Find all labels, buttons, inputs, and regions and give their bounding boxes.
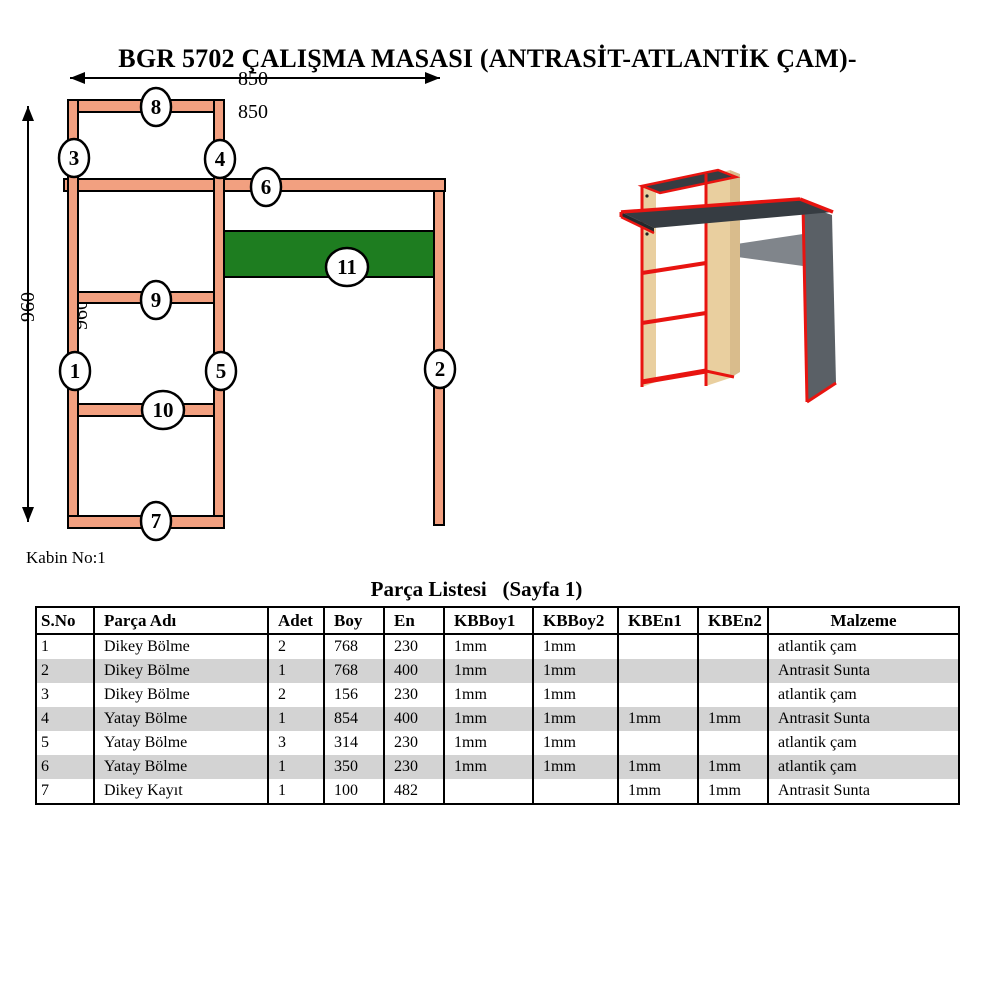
- column-header: Boy: [324, 607, 384, 634]
- column-header: KBBoy2: [533, 607, 618, 634]
- width-dimension-arrow: 850: [70, 68, 440, 90]
- technical-sheet: BGR 5702 ÇALIŞMA MASASI (ANTRASİT-ATLANT…: [0, 0, 1000, 1000]
- table-cell: Yatay Bölme: [94, 707, 268, 731]
- table-cell: Dikey Bölme: [94, 634, 268, 659]
- table-cell: Yatay Bölme: [94, 755, 268, 779]
- table-cell: 230: [384, 634, 444, 659]
- table-cell: [698, 659, 768, 683]
- width-dimension-value: 850: [238, 68, 268, 90]
- column-header: KBEn1: [618, 607, 698, 634]
- table-cell: 1mm: [444, 659, 533, 683]
- marker-1: 1: [70, 359, 81, 383]
- table-cell: atlantik çam: [768, 755, 959, 779]
- parts-table-body: 1Dikey Bölme27682301mm1mmatlantik çam2Di…: [36, 634, 959, 804]
- height-dimension-value: 960: [17, 292, 39, 322]
- table-cell: [698, 634, 768, 659]
- height-dimension-arrow: 960: [17, 106, 39, 522]
- table-row: 7Dikey Kayıt11004821mm1mmAntrasit Sunta: [36, 779, 959, 804]
- table-cell: 2: [36, 659, 94, 683]
- table-cell: 1mm: [698, 707, 768, 731]
- table-cell: [698, 683, 768, 707]
- parts-table: S.NoParça AdıAdetBoyEnKBBoy1KBBoy2KBEn1K…: [35, 606, 960, 805]
- table-cell: [444, 779, 533, 804]
- table-cell: 5: [36, 731, 94, 755]
- marker-2: 2: [435, 357, 446, 381]
- render-screw-dot: [645, 194, 648, 197]
- marker-5: 5: [216, 359, 227, 383]
- table-cell: 2: [268, 683, 324, 707]
- table-cell: 400: [384, 659, 444, 683]
- marker-9: 9: [151, 288, 162, 312]
- table-cell: [698, 731, 768, 755]
- front-view-drawing: 850 960 960 850 8 3 4 6 11 9 1: [0, 0, 520, 580]
- render-tower-right-side: [730, 170, 740, 378]
- table-cell: 1mm: [444, 634, 533, 659]
- table-cell: 1mm: [698, 755, 768, 779]
- table-cell: [618, 731, 698, 755]
- table-row: 1Dikey Bölme27682301mm1mmatlantik çam: [36, 634, 959, 659]
- column-header: Malzeme: [768, 607, 959, 634]
- table-cell: atlantik çam: [768, 683, 959, 707]
- table-cell: 1mm: [618, 707, 698, 731]
- marker-4: 4: [215, 147, 226, 171]
- render-screw-dot: [645, 232, 648, 235]
- table-row: 6Yatay Bölme13502301mm1mm1mm1mmatlantik …: [36, 755, 959, 779]
- table-cell: 230: [384, 731, 444, 755]
- table-cell: 854: [324, 707, 384, 731]
- table-cell: 1: [268, 707, 324, 731]
- render-tower-right-panel: [706, 170, 730, 386]
- table-cell: 156: [324, 683, 384, 707]
- table-cell: 1: [268, 659, 324, 683]
- table-cell: 230: [384, 755, 444, 779]
- table-cell: 4: [36, 707, 94, 731]
- table-cell: 350: [324, 755, 384, 779]
- parts-list-title: Parça Listesi (Sayfa 1): [35, 577, 958, 602]
- table-cell: 1: [268, 779, 324, 804]
- table-cell: [618, 634, 698, 659]
- table-cell: [533, 779, 618, 804]
- table-cell: 1mm: [533, 634, 618, 659]
- render-right-leg: [803, 205, 836, 402]
- table-cell: 1mm: [444, 755, 533, 779]
- table-cell: 1mm: [444, 683, 533, 707]
- table-cell: 7: [36, 779, 94, 804]
- table-row: 4Yatay Bölme18544001mm1mm1mm1mmAntrasit …: [36, 707, 959, 731]
- table-cell: atlantik çam: [768, 731, 959, 755]
- table-cell: Dikey Bölme: [94, 659, 268, 683]
- column-header: S.No: [36, 607, 94, 634]
- cabin-number-note: Kabin No:1: [26, 548, 106, 568]
- table-cell: 400: [384, 707, 444, 731]
- table-cell: 1mm: [618, 779, 698, 804]
- column-header: KBBoy1: [444, 607, 533, 634]
- table-cell: 1mm: [533, 683, 618, 707]
- table-cell: 1: [36, 634, 94, 659]
- table-cell: atlantik çam: [768, 634, 959, 659]
- table-cell: 6: [36, 755, 94, 779]
- table-row: 3Dikey Bölme21562301mm1mmatlantik çam: [36, 683, 959, 707]
- table-cell: 230: [384, 683, 444, 707]
- marker-8: 8: [151, 95, 162, 119]
- table-cell: 1mm: [444, 707, 533, 731]
- table-cell: [618, 683, 698, 707]
- render-back-rail: [730, 234, 803, 266]
- column-header: En: [384, 607, 444, 634]
- table-cell: 1mm: [444, 731, 533, 755]
- desk-3d-render: [590, 150, 970, 430]
- marker-11: 11: [337, 255, 357, 279]
- table-row: 2Dikey Bölme17684001mm1mmAntrasit Sunta: [36, 659, 959, 683]
- table-cell: Dikey Kayıt: [94, 779, 268, 804]
- table-cell: 100: [324, 779, 384, 804]
- table-cell: 1mm: [533, 659, 618, 683]
- table-cell: 768: [324, 659, 384, 683]
- marker-3: 3: [69, 146, 80, 170]
- table-cell: Antrasit Sunta: [768, 707, 959, 731]
- table-cell: 1mm: [533, 707, 618, 731]
- width-side-label: 850: [238, 101, 268, 123]
- parts-table-header-row: S.NoParça AdıAdetBoyEnKBBoy1KBBoy2KBEn1K…: [36, 607, 959, 634]
- table-cell: 2: [268, 634, 324, 659]
- table-cell: 314: [324, 731, 384, 755]
- table-cell: 3: [268, 731, 324, 755]
- column-header: Parça Adı: [94, 607, 268, 634]
- marker-6: 6: [261, 175, 272, 199]
- table-cell: 1mm: [698, 779, 768, 804]
- table-cell: 3: [36, 683, 94, 707]
- table-cell: 1mm: [618, 755, 698, 779]
- table-cell: Yatay Bölme: [94, 731, 268, 755]
- marker-10: 10: [153, 398, 174, 422]
- column-header: KBEn2: [698, 607, 768, 634]
- table-cell: 1: [268, 755, 324, 779]
- table-cell: [618, 659, 698, 683]
- table-cell: 1mm: [533, 731, 618, 755]
- table-cell: 768: [324, 634, 384, 659]
- table-cell: 482: [384, 779, 444, 804]
- column-header: Adet: [268, 607, 324, 634]
- table-row: 5Yatay Bölme33142301mm1mmatlantik çam: [36, 731, 959, 755]
- part-markers: 8 3 4 6 11 9 1 5 2 10 7: [59, 88, 455, 540]
- table-cell: Dikey Bölme: [94, 683, 268, 707]
- table-cell: 1mm: [533, 755, 618, 779]
- table-cell: Antrasit Sunta: [768, 779, 959, 804]
- table-cell: Antrasit Sunta: [768, 659, 959, 683]
- marker-7: 7: [151, 509, 162, 533]
